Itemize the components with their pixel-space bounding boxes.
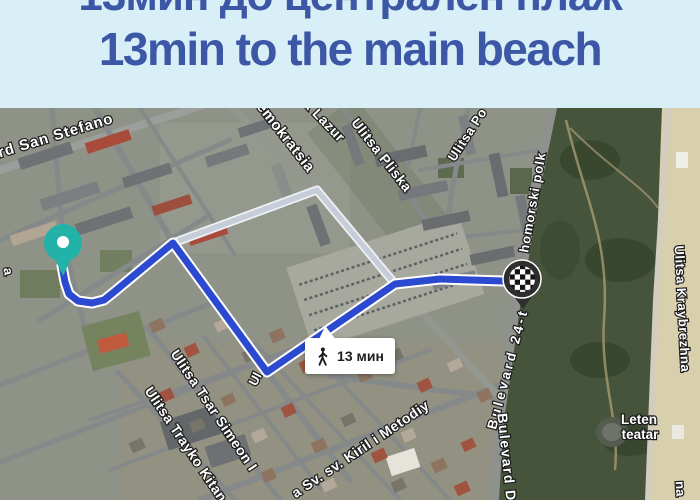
- route-duration-text: 13 мин: [337, 348, 384, 364]
- street-label: Leten: [621, 412, 657, 427]
- header-banner: 13мин до централен плаж 13min to the mai…: [0, 0, 700, 108]
- street-label: na: [673, 481, 689, 498]
- page: 13мин до централен плаж 13min to the mai…: [0, 0, 700, 500]
- street-label: teatar: [622, 427, 660, 442]
- title-bulgarian: 13мин до централен плаж: [0, 0, 700, 21]
- satellite-map[interactable]: rd San Stefanoemokratsiak LazurUlitsa Pl…: [0, 108, 700, 500]
- title-english: 13min to the main beach: [0, 22, 700, 76]
- pin-center-dot: [57, 236, 69, 248]
- badge-pointer: [317, 325, 334, 340]
- walking-person-icon: [316, 347, 330, 366]
- checkered-flag-icon: [509, 266, 535, 292]
- route-duration-badge[interactable]: 13 мин: [305, 338, 395, 374]
